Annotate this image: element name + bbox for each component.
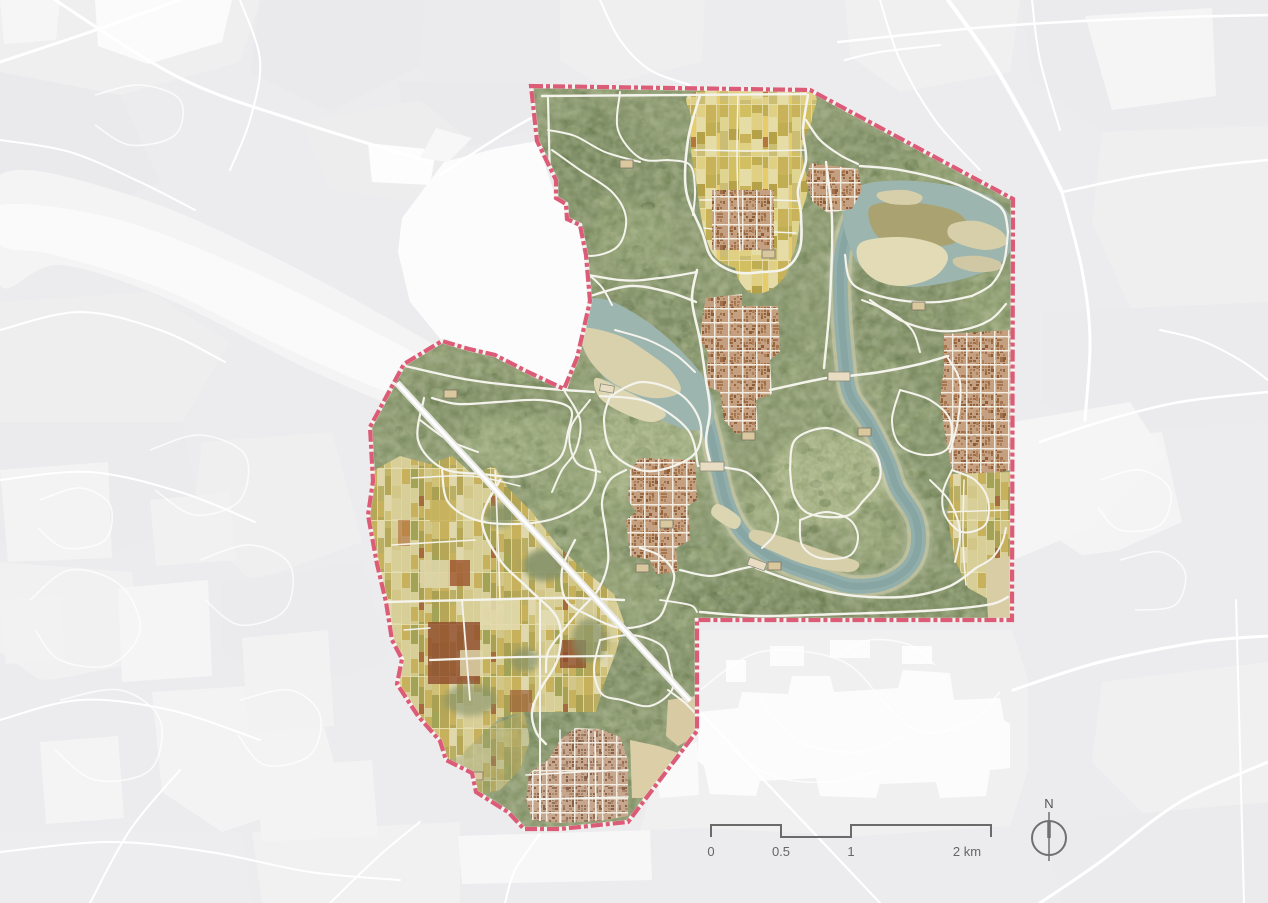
svg-text:N: N — [1044, 796, 1053, 811]
svg-text:0.5: 0.5 — [772, 844, 790, 859]
svg-text:2 km: 2 km — [953, 844, 981, 859]
svg-text:1: 1 — [847, 844, 854, 859]
svg-text:0: 0 — [707, 844, 714, 859]
